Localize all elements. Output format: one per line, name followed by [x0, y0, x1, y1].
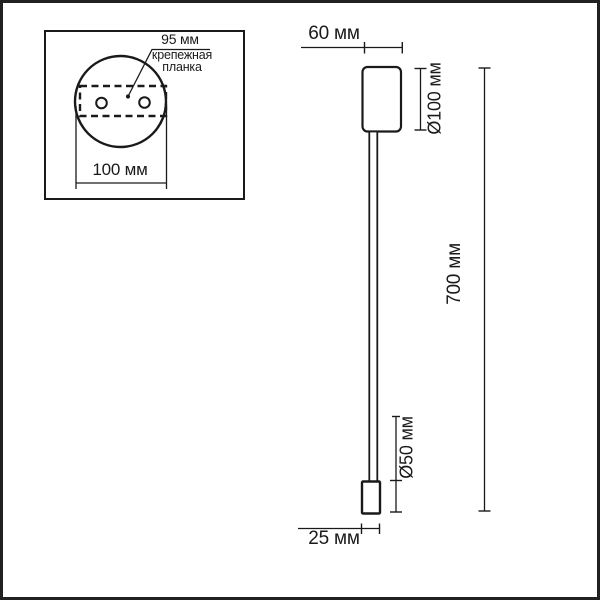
lamp-tip — [362, 482, 380, 514]
plate-width-label: 100 мм — [80, 161, 160, 179]
head-diameter-label: Ø100 мм — [426, 38, 445, 158]
overall-height-label: 700 мм — [445, 214, 465, 334]
head-width-label: 60 мм — [294, 24, 374, 44]
lamp-rod — [369, 132, 377, 482]
tip-diameter-label: Ø50 мм — [398, 387, 417, 507]
mount-plate-dashed-rect — [80, 86, 166, 116]
mount-plate-label-line2: планка — [142, 62, 222, 74]
dimension-drawing: 95 мм крепежная планка 100 мм 60 мм Ø100… — [0, 0, 600, 600]
lamp-head — [363, 67, 402, 132]
hole-spacing-label: 95 мм — [150, 32, 210, 47]
mount-hole-right — [139, 97, 150, 108]
tip-width-label: 25 мм — [294, 529, 374, 549]
drawing-canvas — [3, 3, 600, 600]
mount-plate-label: крепежная планка — [142, 50, 222, 73]
mount-hole-left — [96, 98, 107, 109]
